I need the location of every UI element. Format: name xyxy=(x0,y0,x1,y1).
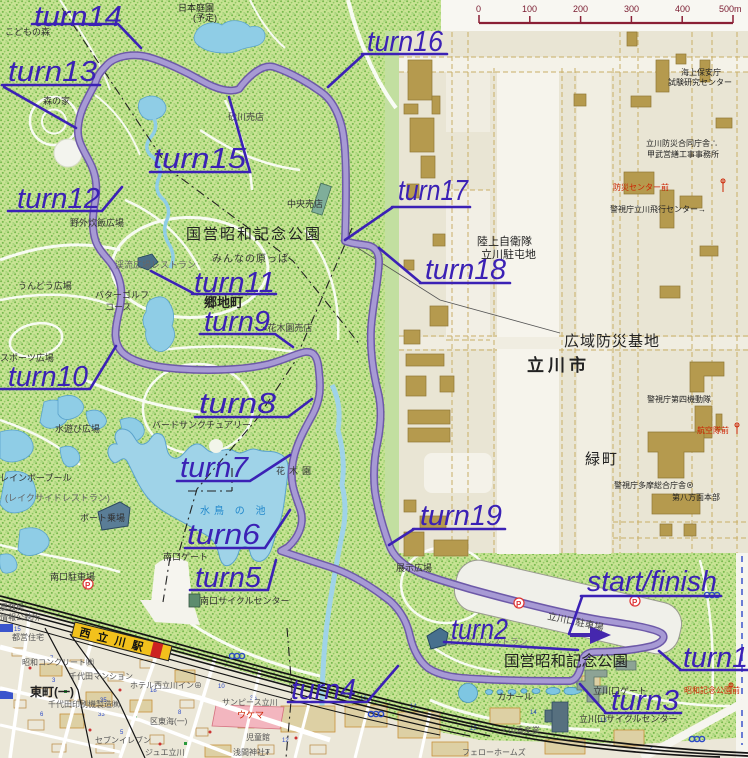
svg-text:浅間神社₮: 浅間神社₮ xyxy=(233,747,270,757)
svg-text:千代田印刷機製造㈱: 千代田印刷機製造㈱ xyxy=(48,699,120,709)
svg-text:turn5: turn5 xyxy=(195,562,262,594)
svg-text:警視庁第四機動隊: 警視庁第四機動隊 xyxy=(647,394,711,404)
svg-text:(レイクサイドレストラン): (レイクサイドレストラン) xyxy=(5,493,110,503)
svg-text:バードサンクチュアリー: バードサンクチュアリー xyxy=(152,420,251,430)
svg-text:甲武営繕工事事務所: 甲武営繕工事事務所 xyxy=(647,149,719,159)
svg-text:渓流広場レストラン: 渓流広場レストラン xyxy=(115,259,196,270)
svg-text:農政局: 農政局 xyxy=(0,602,24,612)
svg-text:防災センター前: 防災センター前 xyxy=(613,182,669,192)
svg-text:コース: コース xyxy=(105,302,132,312)
svg-text:第八方面本部: 第八方面本部 xyxy=(672,492,720,502)
svg-text:警視庁多摩総合庁舎⊗: 警視庁多摩総合庁舎⊗ xyxy=(614,480,694,490)
svg-text:セブンイレブン: セブンイレブン xyxy=(95,735,151,745)
svg-text:ボート乗場: ボート乗場 xyxy=(80,512,125,523)
svg-text:turn17: turn17 xyxy=(398,175,470,207)
svg-text:start/finish: start/finish xyxy=(587,566,717,598)
svg-text:昭和コンクリート㈱: 昭和コンクリート㈱ xyxy=(22,657,94,667)
svg-text:turn14: turn14 xyxy=(34,1,122,33)
svg-text:P: P xyxy=(516,600,522,609)
svg-text:100: 100 xyxy=(522,4,537,14)
svg-text:南口駐車場: 南口駐車場 xyxy=(50,571,95,582)
svg-text:・山喜産業: ・山喜産業 xyxy=(500,725,540,735)
svg-text:turn3: turn3 xyxy=(611,685,679,717)
svg-text:試験研究センター: 試験研究センター xyxy=(668,77,732,87)
svg-text:300: 300 xyxy=(624,4,639,14)
svg-text:国営昭和記念公園: 国営昭和記念公園 xyxy=(504,652,628,670)
svg-text:東町(一): 東町(一) xyxy=(30,684,74,699)
svg-text:ホテル西立川イン⊕: ホテル西立川イン⊕ xyxy=(130,680,202,690)
svg-text:広域防災基地: 広域防災基地 xyxy=(564,333,660,350)
svg-text:400: 400 xyxy=(675,4,690,14)
svg-text:サンピース立川: サンピース立川 xyxy=(222,697,278,707)
svg-text:turn13: turn13 xyxy=(8,56,97,88)
svg-text:turn2: turn2 xyxy=(451,614,508,646)
svg-text:(予定): (予定) xyxy=(193,12,217,23)
svg-text:500m: 500m xyxy=(719,4,742,14)
svg-text:警視庁立川飛行センター→: 警視庁立川飛行センター→ xyxy=(610,204,706,214)
svg-text:みんなの原っぱ: みんなの原っぱ xyxy=(212,253,289,265)
svg-text:日本庭園: 日本庭園 xyxy=(178,2,214,13)
svg-text:turn19: turn19 xyxy=(420,500,502,532)
svg-text:森の家: 森の家 xyxy=(43,95,70,106)
svg-text:turn4: turn4 xyxy=(291,674,356,706)
svg-text:200: 200 xyxy=(573,4,588,14)
svg-text:水鳥 の 池: 水鳥 の 池 xyxy=(200,504,270,517)
svg-text:航空隊前: 航空隊前 xyxy=(697,425,729,435)
svg-text:14: 14 xyxy=(530,710,537,716)
svg-text:水遊び広場: 水遊び広場 xyxy=(55,423,100,434)
svg-text:P: P xyxy=(85,581,91,590)
svg-text:海上保安庁: 海上保安庁 xyxy=(681,67,721,77)
svg-text:ウケマ: ウケマ xyxy=(237,710,264,720)
svg-text:陸上自衛隊: 陸上自衛隊 xyxy=(477,234,532,248)
svg-text:レインボープール: レインボープール xyxy=(0,473,71,483)
svg-text:12: 12 xyxy=(282,738,289,744)
svg-text:turn7: turn7 xyxy=(180,452,250,484)
svg-text:turn11: turn11 xyxy=(194,267,275,299)
svg-text:フェローホームズ: フェローホームズ xyxy=(462,747,526,757)
svg-text:南口サイクルセンター: 南口サイクルセンター xyxy=(200,595,290,606)
svg-text:国営昭和記念公園: 国営昭和記念公園 xyxy=(186,225,322,243)
svg-text:turn12: turn12 xyxy=(17,183,100,215)
svg-text:P: P xyxy=(632,598,638,607)
svg-text:turn8: turn8 xyxy=(199,388,276,420)
svg-text:バターゴルフ: バターゴルフ xyxy=(95,289,149,300)
svg-text:うんどう広場: うんどう広場 xyxy=(18,280,72,291)
svg-text:千代田マンション: 千代田マンション xyxy=(69,671,133,681)
svg-text:立川市: 立川市 xyxy=(527,355,590,375)
svg-text:区東海(一): 区東海(一) xyxy=(150,716,188,726)
svg-text:花木園: 花木園 xyxy=(276,465,315,476)
svg-text:turn16: turn16 xyxy=(367,26,444,58)
svg-text:10: 10 xyxy=(218,684,225,690)
svg-text:情報公聴所: 情報公聴所 xyxy=(0,612,40,622)
svg-text:turn15: turn15 xyxy=(153,143,247,175)
svg-text:turn6: turn6 xyxy=(187,519,261,551)
svg-text:野外炊飯広場: 野外炊飯広場 xyxy=(70,217,124,228)
svg-text:turn9: turn9 xyxy=(204,306,270,338)
svg-text:南口ゲート: 南口ゲート xyxy=(163,551,208,562)
svg-text:緑町: 緑町 xyxy=(585,451,619,468)
svg-text:turn10: turn10 xyxy=(8,361,88,393)
svg-text:turn18: turn18 xyxy=(425,254,506,286)
svg-text:ジュエ立川: ジュエ立川 xyxy=(145,747,184,757)
svg-text:都営住宅: 都営住宅 xyxy=(12,632,44,642)
svg-text:展示広場: 展示広場 xyxy=(396,562,432,573)
svg-text:立川防災合同庁舎∴: 立川防災合同庁舎∴ xyxy=(646,138,718,148)
svg-text:児童館: 児童館 xyxy=(246,732,270,742)
svg-text:カナール: カナール xyxy=(497,692,533,702)
svg-text:turn1: turn1 xyxy=(683,642,748,674)
svg-text:0: 0 xyxy=(476,4,481,14)
svg-text:中央売店: 中央売店 xyxy=(287,198,323,209)
